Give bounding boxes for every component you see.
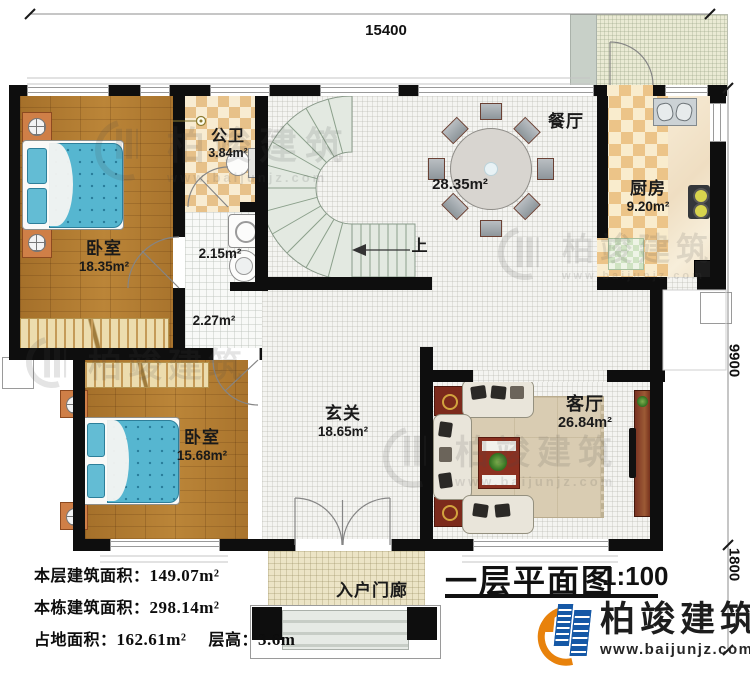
wall-living-bottom-right — [607, 539, 663, 551]
company-website: www.baijunjz.com — [600, 641, 750, 658]
porch-column — [407, 607, 437, 640]
living-name: 客厅 — [545, 394, 625, 415]
wardrobe-icon — [77, 362, 209, 388]
dining-chair-icon — [480, 103, 502, 120]
bed-icon — [22, 140, 124, 230]
window-bedroom1 — [27, 85, 109, 96]
drawing-scale: 1:100 — [602, 561, 669, 592]
dining-table-center — [484, 162, 498, 176]
room-label-bedroom1: 卧室 18.35m² — [58, 239, 150, 274]
window-kitchen-right — [710, 103, 726, 142]
dimension-right-porch: 1800 — [726, 543, 743, 587]
window-bath — [210, 85, 270, 96]
bedroom2-door-opening — [213, 348, 260, 360]
wall-living-bottom-left — [420, 539, 473, 551]
sofa-icon — [433, 414, 472, 500]
dining-chair-icon — [480, 220, 502, 237]
kitchen-mat-icon — [608, 238, 644, 270]
room-label-foyer: 玄关 18.65m² — [303, 404, 383, 439]
room-label-kitchen: 厨房 9.20m² — [608, 179, 688, 214]
stat-row: 本层建筑面积：149.07m² — [34, 562, 295, 586]
ac-pad-left — [2, 357, 34, 389]
bedroom2-area: 15.68m² — [162, 448, 242, 464]
room-label-living: 客厅 26.84m² — [545, 394, 625, 431]
porch-steps — [282, 610, 409, 650]
stove-icon — [688, 185, 710, 219]
wall-foyer-living — [420, 347, 433, 551]
living-passage-opening — [473, 370, 607, 382]
chaise-icon — [462, 495, 534, 534]
bedroom1-name: 卧室 — [58, 239, 150, 259]
wall-stairs-bottom — [255, 277, 432, 290]
sofa-icon — [462, 379, 534, 418]
side-table-icon — [434, 497, 464, 527]
wall-foyer-bottom-right — [390, 539, 420, 551]
nightstand-icon — [22, 112, 52, 142]
company-logo-icon — [538, 602, 592, 658]
wall-outer-left — [9, 85, 20, 360]
ac-pad-right — [700, 292, 732, 324]
tv-icon — [629, 428, 636, 478]
entry-door-opening — [295, 539, 392, 551]
wall-foyer-bottom-left — [268, 539, 295, 551]
bedroom2-name: 卧室 — [162, 428, 242, 448]
room-label-hall: 2.27m² — [174, 313, 254, 329]
bath-name: 公卫 — [188, 128, 268, 146]
window-bedroom2-bottom — [110, 539, 220, 551]
room-label-laundry: 2.15m² — [180, 246, 260, 262]
porch-name: 入户门廊 — [312, 581, 432, 601]
room-label-dining-area: 28.35m² — [420, 176, 500, 193]
company-logo: 柏竣建筑 www.baijunjz.com — [538, 602, 750, 658]
company-name: 柏竣建筑 — [600, 602, 750, 637]
dimension-top: 15400 — [356, 22, 416, 39]
room-label-bath: 公卫 3.84m² — [188, 128, 268, 161]
stat-row: 本栋建筑面积：298.14m² — [34, 594, 295, 618]
wall-living-top-left — [433, 370, 473, 382]
nightstand-icon — [22, 228, 52, 258]
laundry-area: 2.15m² — [180, 246, 260, 262]
kitchen-area: 9.20m² — [608, 199, 688, 215]
room-label-bedroom2: 卧室 15.68m² — [162, 428, 242, 463]
stairs-up-label: 上 — [408, 238, 432, 256]
room-label-dining-name: 餐厅 — [531, 112, 601, 132]
bath-area: 3.84m² — [188, 146, 268, 160]
living-area: 26.84m² — [545, 415, 625, 432]
title-underline — [445, 594, 658, 598]
kitchen-name: 厨房 — [608, 179, 688, 199]
kitchen-sink-icon — [653, 98, 697, 126]
wardrobe-icon — [20, 318, 169, 350]
hall-area: 2.27m² — [174, 313, 254, 329]
bedroom1-area: 18.35m² — [58, 259, 150, 275]
wall-living-right — [650, 290, 663, 551]
side-table-icon — [434, 386, 464, 416]
balcony-edge-strip — [570, 14, 597, 88]
area-statistics: 本层建筑面积：149.07m² 本栋建筑面积：298.14m² 占地面积：162… — [34, 562, 295, 658]
window-living-bottom — [473, 539, 609, 551]
plant-icon — [637, 396, 648, 407]
kitchen-balcony-door-opening — [607, 85, 653, 96]
dimension-right-main: 9900 — [726, 339, 743, 383]
window-kitchen-top — [665, 85, 708, 96]
plant-icon — [489, 453, 507, 471]
rear-balcony-floor — [595, 14, 728, 88]
dining-name: 餐厅 — [531, 112, 601, 132]
wall-kitchen-bottom-left — [597, 277, 667, 290]
wall-bedroom2-left — [73, 360, 85, 551]
window-bedroom1-small — [140, 85, 170, 96]
window-stairs — [320, 85, 399, 96]
room-label-porch: 入户门廊 — [312, 581, 432, 601]
stat-row: 占地面积：162.61m²层高：3.6m — [34, 626, 295, 650]
foyer-area: 18.65m² — [303, 424, 383, 440]
foyer-name: 玄关 — [303, 404, 383, 424]
dining-area: 28.35m² — [420, 176, 500, 193]
window-dining — [418, 85, 594, 96]
dining-chair-icon — [537, 158, 554, 180]
floor-plan-canvas: 卧室 18.35m² 公卫 3.84m² 2.15m² 2.27m² 餐厅 28… — [0, 0, 750, 673]
kitchen-door-opening — [667, 277, 697, 290]
wall-bedroom1-right-upper — [173, 96, 185, 237]
